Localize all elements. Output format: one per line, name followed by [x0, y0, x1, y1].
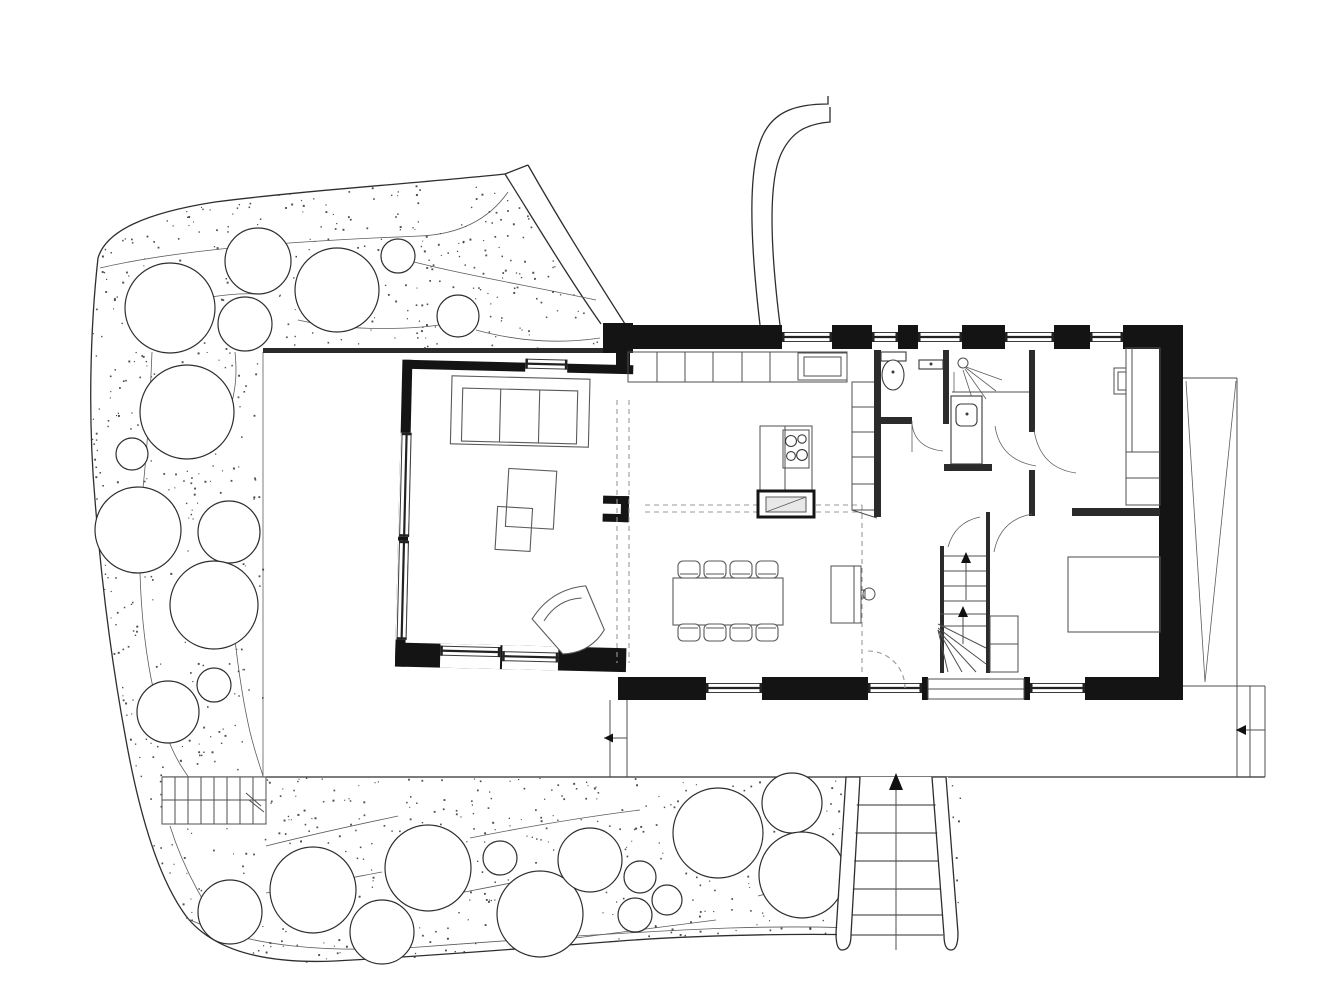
- shelf: [919, 360, 943, 369]
- tree-circle: [225, 228, 291, 294]
- tree-circle: [381, 239, 415, 273]
- window: [918, 325, 962, 349]
- dining-chair: [730, 624, 752, 641]
- counter-dividers: [657, 352, 770, 382]
- dashed-overhead-lines: [617, 400, 905, 688]
- window: [868, 677, 922, 700]
- dining-chair: [704, 561, 726, 578]
- site-garden: [91, 96, 1265, 964]
- window: [782, 325, 832, 349]
- window: [396, 541, 409, 640]
- dining-chair: [704, 624, 726, 641]
- dining-chair: [730, 561, 752, 578]
- tree-circle: [673, 788, 763, 878]
- house-living-block: [395, 356, 634, 673]
- retaining-wall-upper-line: [505, 174, 601, 324]
- tree-circle: [350, 900, 414, 964]
- tree-circle: [198, 880, 262, 944]
- doorway-pier: [603, 496, 630, 523]
- bedroom1-west-wall-upper: [1029, 350, 1035, 432]
- kitchen-tall-units: [852, 382, 877, 510]
- up-arrow-icon: [958, 606, 968, 617]
- south-glazed-door: [928, 677, 1024, 700]
- tall-unit-dividers: [852, 407, 877, 484]
- ramp-slope-line-left: [1186, 381, 1205, 682]
- window: [872, 325, 898, 349]
- tree-circle: [624, 861, 656, 893]
- sofa: [450, 376, 590, 447]
- burner-icon: [786, 436, 797, 447]
- tree-circle: [558, 828, 622, 892]
- wc-shower-partition: [943, 350, 949, 424]
- deck-ramp: [1183, 378, 1265, 777]
- tree-circle: [140, 365, 234, 459]
- tree-circle: [295, 248, 379, 332]
- floor-plan-sheet: Site and ground floor plan — black and w…: [0, 0, 1338, 992]
- bedroom1-west-wall-lower: [1029, 470, 1035, 516]
- window: [398, 433, 412, 537]
- cooktop-burners: [786, 435, 808, 461]
- terrace-step: [604, 700, 627, 777]
- tree-circle: [95, 487, 181, 573]
- ramp-slope-line-right: [1205, 381, 1236, 682]
- bedroom1-door-swing: [1034, 430, 1076, 473]
- door-swings: [912, 421, 1076, 552]
- tree-circle: [170, 561, 258, 649]
- bedroom-dividing-wall: [1072, 508, 1160, 516]
- vanity-basin: [951, 396, 982, 464]
- hearth-bench: [758, 491, 814, 517]
- dining-table: [673, 578, 783, 625]
- bedroom1-wardrobe: [1114, 348, 1160, 505]
- tree-circle: [483, 841, 517, 875]
- dining-chair: [756, 561, 778, 578]
- coffee-tables: [495, 468, 557, 552]
- wood-stove: [831, 566, 875, 623]
- tree-circle: [618, 898, 652, 932]
- window: [1005, 325, 1054, 349]
- bathroom: [874, 350, 1029, 517]
- retaining-wall-tip: [505, 165, 528, 174]
- hall-door-swing: [948, 517, 980, 547]
- burner-icon: [797, 450, 808, 461]
- shower-south-wall: [944, 464, 992, 471]
- living-north-wall: [405, 360, 633, 375]
- window: [1090, 325, 1123, 349]
- kitchen: [628, 352, 877, 518]
- retaining-wall-lower-line: [528, 165, 625, 324]
- burner-icon: [798, 435, 806, 443]
- winder-treads: [938, 624, 986, 672]
- bathroom-west-wall: [874, 350, 881, 517]
- up-arrow-icon: [961, 552, 971, 563]
- wc-door-swing: [912, 424, 943, 451]
- dining-chair: [678, 561, 700, 578]
- tree-circle: [116, 438, 148, 470]
- tree-circle: [385, 825, 471, 911]
- kitchen-island: [760, 426, 812, 492]
- floor-plan-drawing: Site and ground floor plan — black and w…: [0, 0, 1338, 992]
- tree-circle: [759, 832, 845, 918]
- interior-stair: [938, 512, 1018, 673]
- east-wall: [1159, 325, 1183, 700]
- tree-circle: [270, 847, 356, 933]
- hall-and-bedrooms: [912, 348, 1160, 632]
- garden-steps: [162, 777, 266, 824]
- window: [525, 359, 567, 374]
- tree-circle: [652, 885, 682, 915]
- exterior-stair: [836, 773, 959, 950]
- window: [502, 645, 559, 670]
- northwest-corner: [603, 323, 633, 353]
- shower-head-icon: [958, 358, 968, 368]
- dining-chair: [756, 624, 778, 641]
- bedroom2-door-swing: [994, 514, 1032, 552]
- burner-icon: [787, 452, 796, 461]
- dining-area: [673, 561, 875, 641]
- window: [706, 677, 762, 700]
- toilet: [881, 352, 906, 390]
- tree-circle: [137, 681, 199, 743]
- wc-partition: [874, 417, 912, 424]
- garden-retaining-edge: [263, 348, 605, 353]
- tree-circle: [437, 295, 479, 337]
- tree-circle: [218, 297, 272, 351]
- left-arrow-icon: [604, 734, 613, 743]
- window: [1030, 677, 1085, 700]
- tree-circle: [197, 668, 231, 702]
- tree-circle: [762, 773, 822, 833]
- bed: [1068, 557, 1160, 632]
- window: [440, 644, 501, 669]
- dining-chair: [678, 624, 700, 641]
- tree-circle: [125, 263, 215, 353]
- access-path: [752, 96, 830, 325]
- tree-circle: [198, 501, 260, 563]
